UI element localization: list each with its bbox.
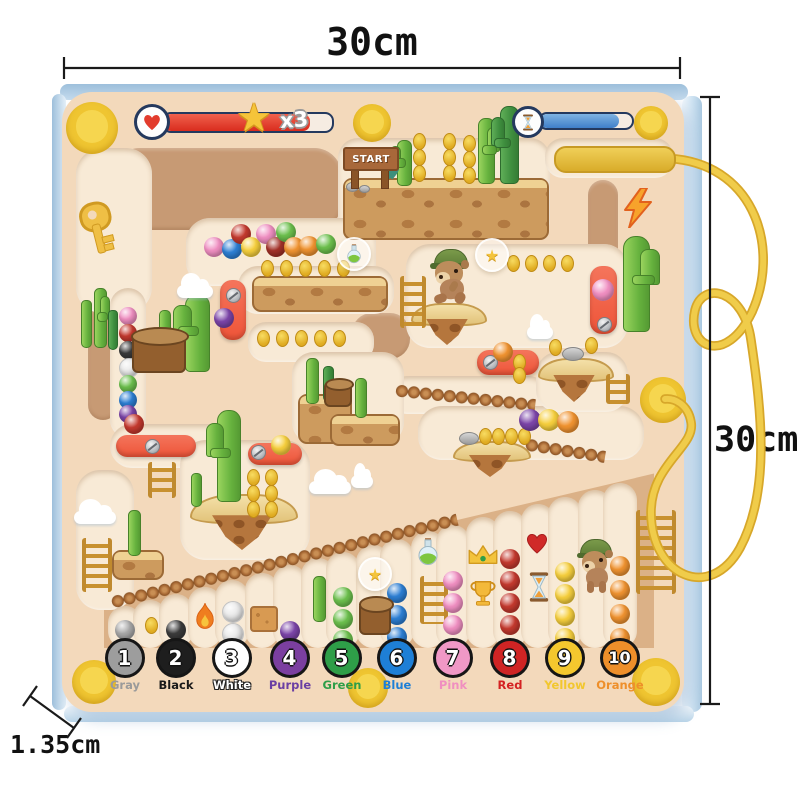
screw-icon — [145, 439, 160, 454]
dimension-thickness-label: 1.35cm — [10, 730, 100, 759]
coin-icon — [314, 330, 327, 347]
coin-icon — [561, 255, 574, 272]
ladder-icon — [606, 374, 630, 404]
cloud-icon — [309, 481, 351, 494]
magnetic-ball-pink — [443, 615, 463, 635]
cactus-icon — [307, 576, 329, 620]
coin-icon — [443, 149, 456, 166]
rock-icon — [562, 347, 584, 361]
magnetic-ball-red — [500, 571, 520, 591]
legend-number-7: 7 — [433, 638, 473, 678]
magnet-hole — [66, 102, 118, 154]
legend-label-green: Green — [314, 678, 370, 692]
lightning-icon — [621, 188, 655, 228]
coin-icon — [265, 469, 278, 486]
star-icon: ★ — [236, 98, 272, 138]
magnetic-ball-yellow — [555, 606, 575, 626]
magnetic-ball-orange — [557, 411, 579, 433]
crown-icon — [466, 544, 500, 566]
magnetic-ball-green — [333, 609, 353, 629]
magnet-hole — [353, 104, 391, 142]
legend-label-gray: Gray — [97, 678, 153, 692]
floating-island — [538, 358, 610, 402]
magnetic-ball-orange — [493, 342, 513, 362]
legend-number-3: 3 — [212, 638, 252, 678]
magnetic-ball-pink — [443, 571, 463, 591]
dirt-platform — [343, 178, 549, 240]
coin-icon — [280, 260, 293, 277]
legend-number-8: 8 — [490, 638, 530, 678]
magnetic-ball-yellow — [555, 562, 575, 582]
magnetic-ball-white — [222, 601, 244, 623]
legend-label-yellow: Yellow — [537, 678, 593, 692]
magnetic-pen — [554, 146, 676, 173]
fire-icon — [194, 603, 216, 631]
potion-icon — [418, 538, 438, 566]
legend-label-pink: Pink — [425, 678, 481, 692]
timer-bar-fill — [540, 114, 619, 128]
coin-icon — [507, 255, 520, 272]
legend-label-purple: Purple — [262, 678, 318, 692]
magnetic-ball-red — [124, 414, 144, 434]
coin-icon — [513, 367, 526, 384]
bear-character — [428, 249, 474, 305]
legend-number-9: 9 — [545, 638, 585, 678]
ladder-icon — [636, 510, 676, 594]
dirt-platform — [252, 276, 388, 312]
start-sign: START — [343, 147, 399, 171]
cloud-icon — [351, 475, 373, 488]
magnetic-ball-pink — [443, 593, 463, 613]
magnetic-ball-pink — [119, 307, 137, 325]
dirt-platform — [330, 414, 400, 446]
legend-number-10: 10 — [600, 638, 640, 678]
hourglass-icon — [528, 572, 550, 602]
tree-stump-icon — [132, 333, 186, 373]
coin-icon — [333, 330, 346, 347]
legend-label-blue: Blue — [369, 678, 425, 692]
potion-bubble-icon — [337, 237, 371, 271]
legend-number-1: 1 — [105, 638, 145, 678]
tree-stump-icon — [324, 381, 352, 407]
coin-icon — [247, 501, 260, 518]
ladder-icon — [400, 276, 426, 328]
magnet-hole — [640, 377, 686, 423]
magnet-hole — [634, 106, 668, 140]
screw-icon — [251, 445, 266, 460]
star-bubble-icon: ★ — [475, 238, 509, 272]
coin-icon — [318, 260, 331, 277]
coin-icon — [525, 255, 538, 272]
coin-icon — [265, 501, 278, 518]
magnetic-ball-red — [500, 615, 520, 635]
rock-icon — [459, 432, 479, 445]
legend-number-2: 2 — [156, 638, 196, 678]
hourglass-timer-icon — [512, 106, 544, 138]
coin-icon — [585, 337, 598, 354]
cloud-icon — [74, 511, 116, 524]
heart-icon — [134, 104, 170, 140]
magnetic-ball-green — [333, 587, 353, 607]
dimension-top-label: 30cm — [292, 20, 452, 64]
coin-icon — [549, 339, 562, 356]
legend-label-orange: Orange — [592, 678, 648, 692]
cactus-icon — [104, 310, 120, 348]
magnetic-ball-red — [500, 593, 520, 613]
bear-character — [575, 539, 617, 593]
legend-number-5: 5 — [322, 638, 362, 678]
coin-icon — [295, 330, 308, 347]
coin-icon — [492, 428, 505, 445]
legend-number-6: 6 — [377, 638, 417, 678]
star-icon: ★ — [485, 246, 499, 265]
timer-bar — [538, 112, 634, 130]
coin-icon — [299, 260, 312, 277]
floating-island — [190, 494, 294, 550]
magnetic-ball-green — [316, 234, 336, 254]
magnetic-ball-orange — [610, 604, 630, 624]
coin-icon — [543, 255, 556, 272]
floating-island — [453, 441, 527, 477]
coin-icon — [276, 330, 289, 347]
product-image-scene: ★★START1Gray2Black3White4Purple5Green6Bl… — [0, 0, 800, 800]
trophy-icon — [468, 578, 498, 608]
legend-number-4: 4 — [270, 638, 310, 678]
magnetic-ball-red — [500, 549, 520, 569]
magnetic-ball-pink — [204, 237, 224, 257]
sand-block-icon — [250, 606, 278, 632]
cactus-icon — [122, 510, 144, 554]
rock-icon — [359, 185, 370, 193]
star-icon: ★ — [368, 565, 382, 584]
coin-icon — [505, 428, 518, 445]
cloud-icon — [527, 326, 553, 339]
cloud-icon — [177, 285, 213, 298]
magnetic-ball-yellow — [271, 435, 291, 455]
heart-icon — [525, 532, 549, 554]
coin-icon — [261, 260, 274, 277]
cactus-icon — [610, 236, 660, 330]
coin-icon — [443, 165, 456, 182]
coin-icon — [257, 330, 270, 347]
legend-label-white: White — [204, 678, 260, 692]
coin-icon — [479, 428, 492, 445]
cactus-icon — [186, 473, 204, 505]
coin-icon — [145, 617, 158, 634]
ladder-icon — [82, 538, 112, 592]
star-multiplier: x3 — [279, 107, 309, 133]
coin-icon — [265, 485, 278, 502]
magnetic-ball-yellow — [555, 584, 575, 604]
legend-label-red: Red — [482, 678, 538, 692]
ladder-icon — [148, 462, 176, 498]
tree-stump-icon — [359, 601, 391, 635]
dimension-right-label: 30cm — [714, 420, 798, 460]
star-bubble-icon: ★ — [358, 557, 392, 591]
legend-label-black: Black — [148, 678, 204, 692]
cactus-icon — [206, 410, 250, 500]
coin-icon — [443, 133, 456, 150]
screw-icon — [226, 288, 241, 303]
